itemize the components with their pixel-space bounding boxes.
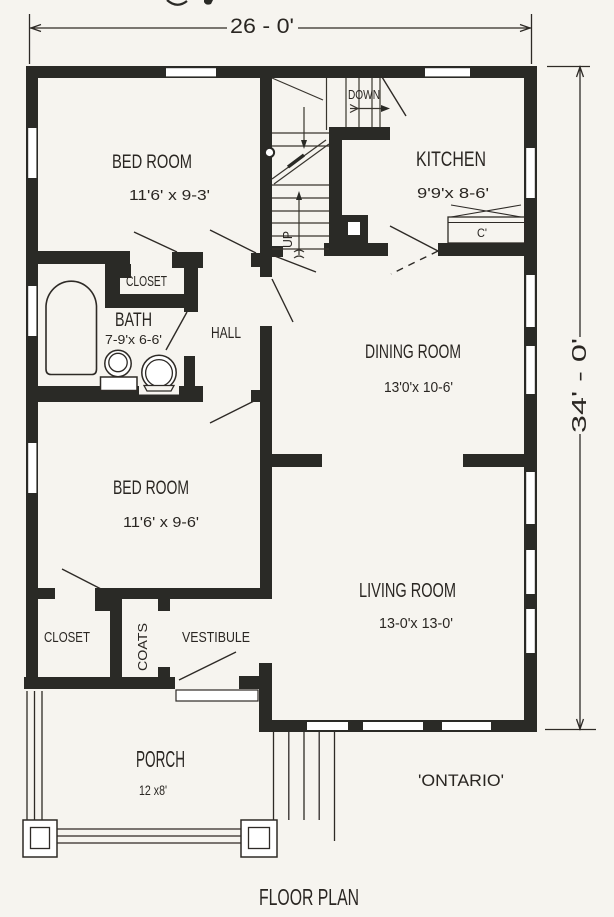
- svg-text:DINING ROOM: DINING ROOM: [365, 342, 461, 363]
- svg-text:HALL: HALL: [211, 325, 241, 342]
- svg-text:7-9'x 6-6': 7-9'x 6-6': [105, 332, 162, 347]
- svg-text:COATS: COATS: [136, 623, 150, 671]
- svg-text:34' - 0': 34' - 0': [569, 338, 591, 433]
- svg-text:13'0'x 10-6': 13'0'x 10-6': [384, 380, 453, 396]
- svg-text:CLOSET: CLOSET: [126, 273, 167, 290]
- svg-text:C': C': [477, 226, 487, 240]
- svg-text:LIVING ROOM: LIVING ROOM: [359, 580, 456, 602]
- svg-text:DOWN: DOWN: [348, 88, 380, 102]
- svg-text:FLOOR PLAN: FLOOR PLAN: [259, 884, 359, 910]
- svg-text:BATH: BATH: [115, 310, 152, 331]
- svg-text:BED ROOM: BED ROOM: [113, 478, 189, 499]
- svg-text:CLOSET: CLOSET: [44, 629, 90, 646]
- svg-text:BED ROOM: BED ROOM: [112, 152, 192, 173]
- svg-text:UP: UP: [281, 231, 295, 248]
- svg-text:13-0'x 13-0': 13-0'x 13-0': [379, 616, 453, 632]
- svg-text:12 x8': 12 x8': [139, 783, 167, 798]
- svg-text:VESTIBULE: VESTIBULE: [182, 629, 250, 646]
- svg-text:26 - 0': 26 - 0': [230, 15, 294, 38]
- svg-text:KITCHEN: KITCHEN: [416, 148, 486, 171]
- svg-text:PORCH: PORCH: [136, 746, 185, 772]
- svg-text:11'6' x 9-6': 11'6' x 9-6': [123, 515, 199, 531]
- svg-text:9'9'x 8-6': 9'9'x 8-6': [417, 186, 489, 202]
- svg-text:11'6' x 9-3': 11'6' x 9-3': [129, 188, 210, 204]
- svg-text:'ONTARIO': 'ONTARIO': [418, 771, 504, 790]
